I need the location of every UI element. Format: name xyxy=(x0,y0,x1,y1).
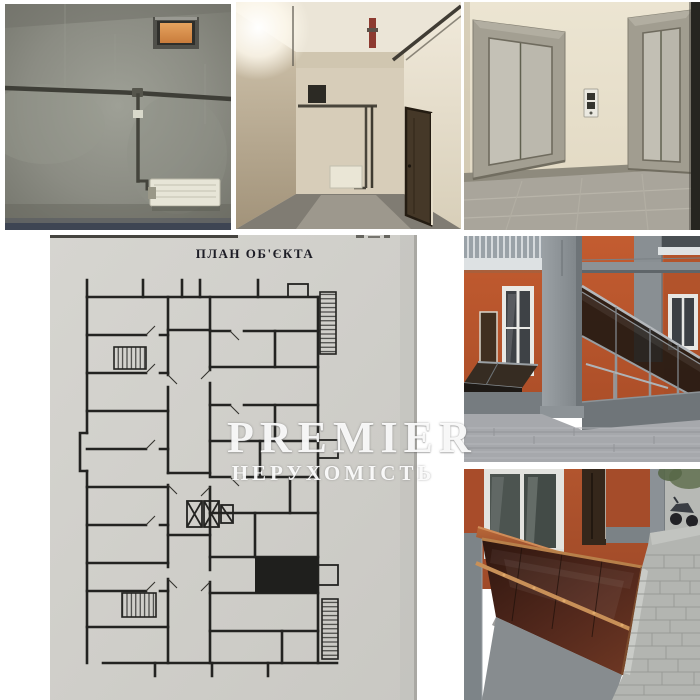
scan-artifact-strip xyxy=(50,235,238,238)
back-wall-shade xyxy=(296,52,404,68)
electrical-box xyxy=(308,85,326,103)
plinth-left xyxy=(464,392,542,414)
plan-title: ПЛАН ОБ'ЄКТА xyxy=(108,246,402,262)
photo-corridor[interactable] xyxy=(236,2,461,229)
facade-photo-rendering xyxy=(464,236,700,462)
photo-facade-entrance[interactable] xyxy=(464,236,700,462)
reveal-wall xyxy=(606,469,650,533)
basement-photo-rendering xyxy=(5,4,231,230)
reveal-skirting xyxy=(606,527,650,543)
elevator-left xyxy=(473,20,565,179)
canopy-photo-rendering xyxy=(464,469,700,700)
right-dark-edge xyxy=(691,2,700,230)
orange-corner xyxy=(464,469,484,535)
main-column xyxy=(542,236,582,410)
upper-sill xyxy=(658,247,700,255)
photo-collage: ПЛАН ОБ'ЄКТА xyxy=(0,0,700,700)
floor-plan-rendering xyxy=(50,235,417,700)
call-panel xyxy=(584,89,598,117)
radiator-unit xyxy=(148,179,220,211)
corridor-photo-rendering xyxy=(236,2,461,229)
entrance-door xyxy=(406,108,432,225)
call-button xyxy=(590,112,593,115)
floor-plan-scan[interactable]: ПЛАН ОБ'ЄКТА xyxy=(50,235,417,700)
photo-basement-canopy[interactable] xyxy=(464,469,700,700)
small-radiator xyxy=(330,166,362,188)
upper-window xyxy=(662,236,700,248)
premier-logo-triangle-icon xyxy=(440,466,458,482)
paper-edge xyxy=(414,235,417,700)
plinth-left xyxy=(464,533,482,700)
elevator-right xyxy=(628,10,692,173)
photo-bottom-strip xyxy=(5,223,231,230)
photo-basement-utilities[interactable] xyxy=(5,4,231,230)
doorway xyxy=(582,469,606,545)
elevators-photo-rendering xyxy=(464,2,700,230)
highlighted-unit xyxy=(255,557,318,593)
vent-window xyxy=(153,17,199,49)
pilaster xyxy=(650,469,665,541)
door-handle xyxy=(408,164,411,167)
floor-edge xyxy=(5,218,231,223)
photo-elevator-lobby[interactable] xyxy=(464,2,700,230)
